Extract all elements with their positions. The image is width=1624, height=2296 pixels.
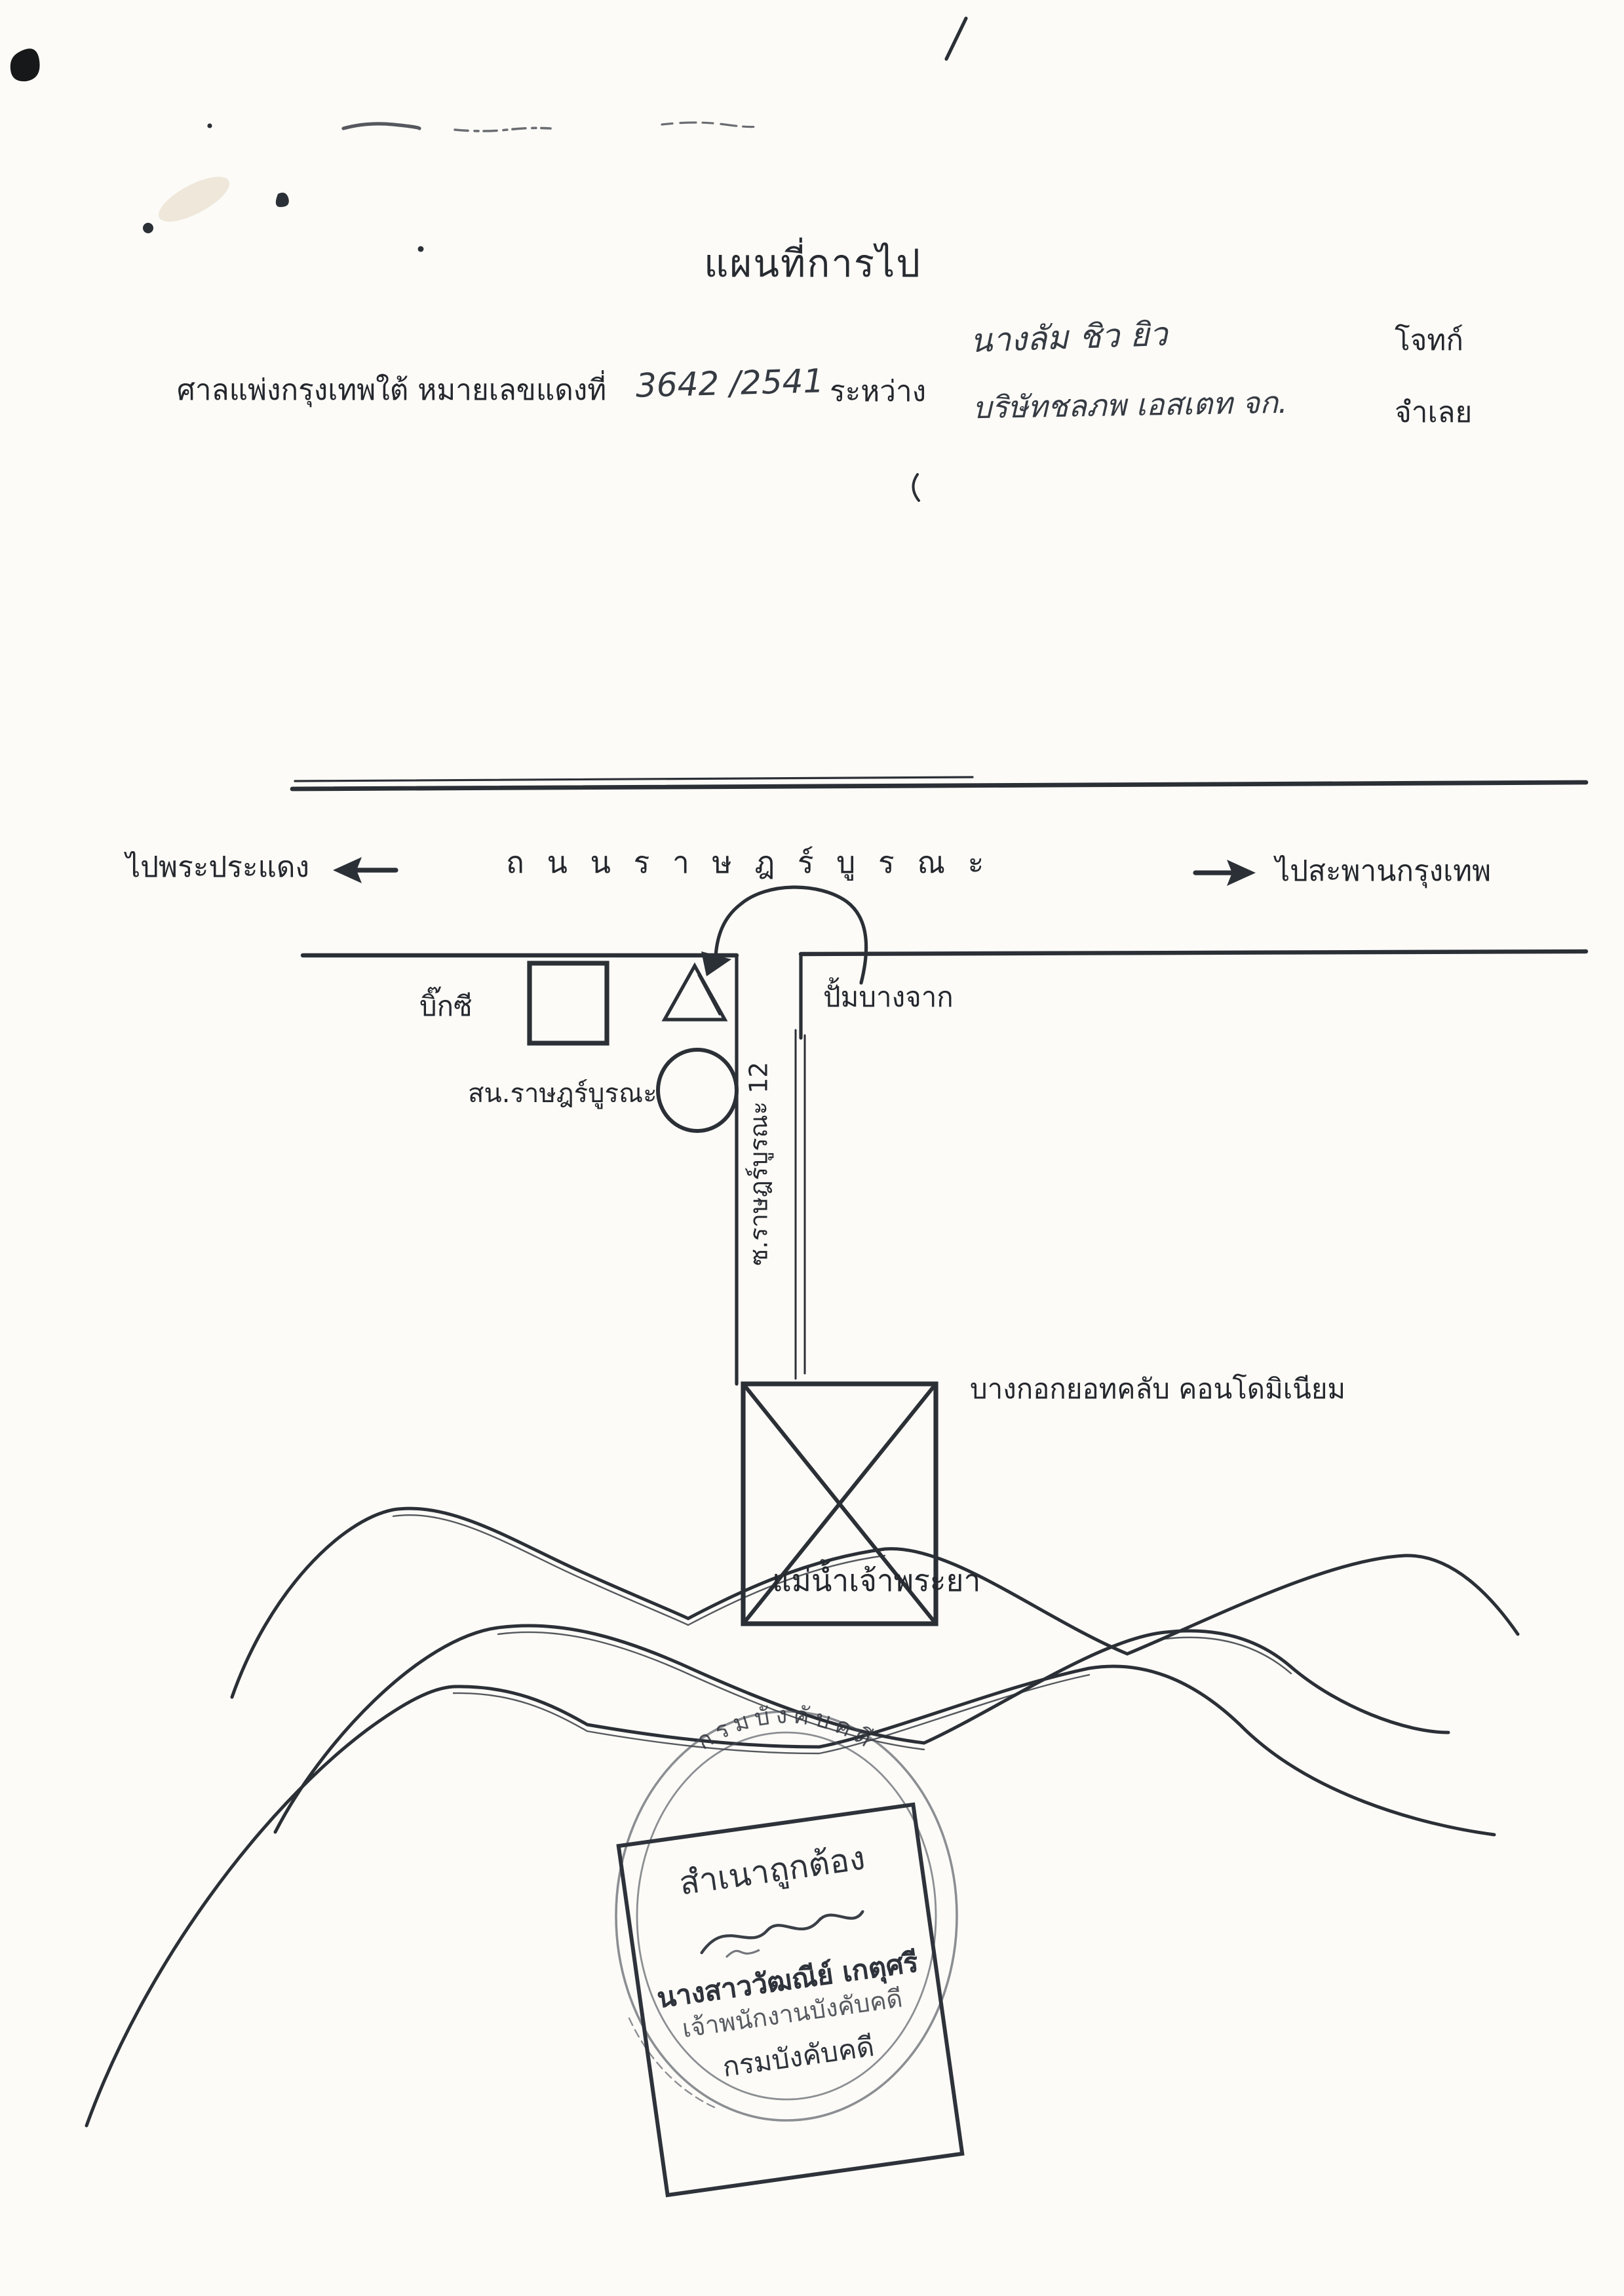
defendant-name: บริษัทชลภพ เอสเตท จก. (973, 385, 1288, 429)
river-wave-2-echo (498, 1632, 1291, 1750)
document-page: กรมบังคับคดี แผนที่การไป ศาลแพ่งกรุงเทพใ… (0, 0, 1624, 2296)
gas-station-label: ปั้มบางจาก (823, 980, 954, 1015)
road-top-line-double (295, 777, 973, 781)
slash-mark (946, 18, 966, 59)
road-top-line (292, 782, 1586, 789)
river-label: แม่น้ำเจ้าพระยา (772, 1563, 980, 1601)
bigc-label: บิ๊กซี (419, 989, 473, 1024)
court-case-prefix: ศาลแพ่งกรุงเทพใต้ หมายเลขแดงที่ (177, 373, 606, 410)
stray-pen-mark (913, 474, 919, 501)
ink-speck (418, 246, 424, 252)
scan-blotch (10, 48, 40, 81)
tan-smudge (153, 168, 236, 230)
soi-name-label: ซ.ราษฎร์บูรณะ 12 (744, 1062, 776, 1265)
gas-triangle-inner-edge (699, 975, 720, 1014)
scuff-dash-line (455, 128, 551, 131)
plaintiff-role: โจทก์ (1395, 324, 1463, 360)
certification-stamp: สำเนาถูกต้อง นางสาววัฒณีย์ เกตุศรี เจ้าพ… (616, 1803, 964, 2198)
defendant-role: จำเลย (1395, 396, 1472, 432)
ink-speck (276, 193, 289, 207)
scuff-dash-line (343, 124, 419, 128)
gas-triangle (665, 966, 725, 1020)
road-name-label: ถ น น ร า ษ ฎ ร์ บู ร ณ ะ (506, 845, 988, 883)
case-number-handwritten: 3642 /2541 (635, 360, 824, 406)
condo-label: บางกอกยอทคลับ คอนโดมิเนียม (970, 1372, 1345, 1407)
road-bottom-line-east (801, 951, 1586, 954)
ink-speck (143, 223, 153, 233)
plaintiff-name: นางลัม ชิว ยิว (969, 314, 1168, 362)
scanned-document: กรมบังคับคดี แผนที่การไป ศาลแพ่งกรุงเทพใ… (0, 0, 1624, 2296)
bigc-square (530, 963, 607, 1043)
police-circle (658, 1050, 737, 1131)
between-label: ระหว่าง (830, 375, 926, 411)
ink-speck (207, 123, 212, 128)
page-title: แผนที่การไป (704, 240, 921, 288)
police-station-label: สน.ราษฎร์บูรณะ (468, 1077, 657, 1110)
east-destination-label: ไปสะพานกรุงเทพ (1275, 854, 1491, 890)
scuff-dash-line (662, 123, 760, 127)
river-wave-1 (232, 1508, 1518, 1697)
west-destination-label: ไปพระประแดง (126, 851, 309, 887)
